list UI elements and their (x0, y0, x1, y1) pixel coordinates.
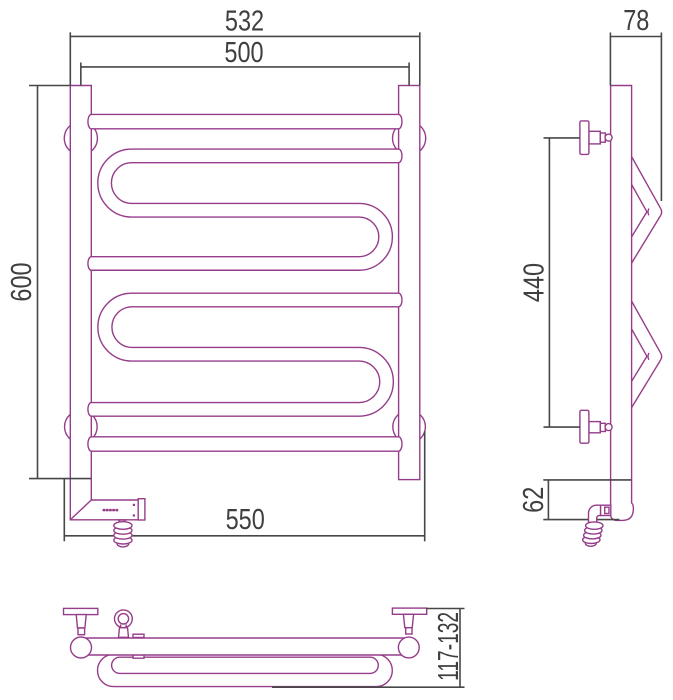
svg-text:532: 532 (225, 6, 264, 38)
svg-text:550: 550 (226, 504, 265, 536)
svg-text:600: 600 (6, 262, 38, 301)
svg-text:62: 62 (518, 487, 550, 513)
svg-text:78: 78 (623, 5, 649, 37)
svg-text:117-132: 117-132 (433, 612, 465, 681)
svg-text:500: 500 (224, 37, 263, 69)
svg-text:440: 440 (518, 263, 550, 302)
